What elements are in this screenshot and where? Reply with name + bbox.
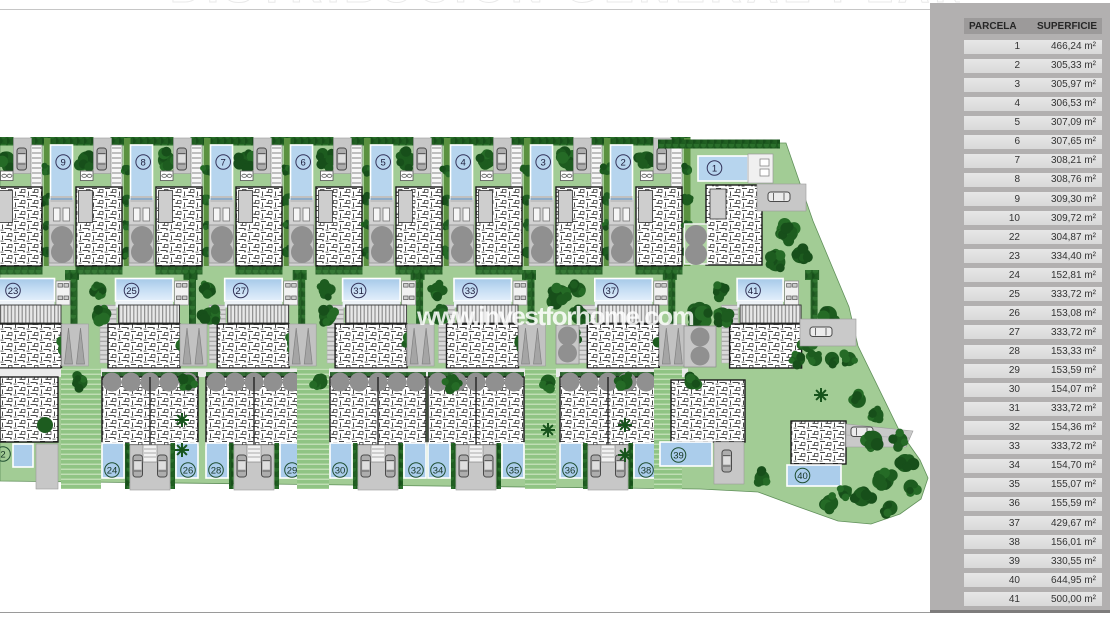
- svg-text:35: 35: [509, 465, 520, 476]
- svg-text:2: 2: [0, 449, 5, 460]
- svg-text:24: 24: [107, 465, 118, 476]
- svg-text:29: 29: [287, 465, 298, 476]
- svg-text:28: 28: [211, 465, 222, 476]
- svg-text:41: 41: [748, 286, 759, 297]
- svg-text:26: 26: [183, 465, 194, 476]
- svg-text:31: 31: [353, 286, 364, 297]
- svg-text:32: 32: [411, 465, 422, 476]
- svg-text:2: 2: [621, 157, 626, 168]
- svg-text:23: 23: [8, 286, 19, 297]
- svg-text:30: 30: [335, 465, 346, 476]
- svg-text:39: 39: [673, 450, 684, 461]
- svg-text:3: 3: [541, 157, 546, 168]
- svg-text:38: 38: [641, 465, 652, 476]
- svg-text:36: 36: [565, 465, 576, 476]
- svg-text:40: 40: [797, 471, 808, 482]
- svg-text:1: 1: [712, 163, 717, 174]
- svg-text:27: 27: [235, 286, 246, 297]
- svg-text:7: 7: [221, 157, 226, 168]
- svg-text:4: 4: [461, 157, 466, 168]
- svg-text:25: 25: [126, 286, 137, 297]
- svg-text:5: 5: [381, 157, 386, 168]
- svg-text:34: 34: [433, 465, 444, 476]
- svg-text:37: 37: [606, 286, 617, 297]
- svg-text:33: 33: [465, 286, 476, 297]
- svg-text:8: 8: [141, 157, 146, 168]
- svg-text:9: 9: [61, 157, 66, 168]
- svg-text:6: 6: [301, 157, 306, 168]
